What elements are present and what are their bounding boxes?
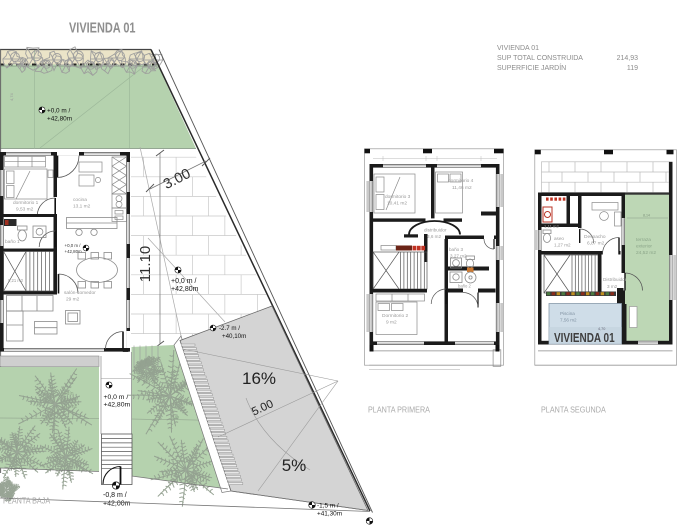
svg-text:9 m2: 9 m2 <box>386 320 397 326</box>
svg-text:terraza: terraza <box>636 237 651 243</box>
svg-text:dormitorio 3: dormitorio 3 <box>385 194 411 200</box>
svg-text:-0,8 m /: -0,8 m / <box>103 492 127 499</box>
svg-text:SUP TOTAL CONSTRUIDA: SUP TOTAL CONSTRUIDA <box>497 55 583 62</box>
svg-text:6,87 m2: 6,87 m2 <box>587 241 605 247</box>
svg-text:119: 119 <box>627 65 638 72</box>
svg-text:distribuidor: distribuidor <box>424 228 447 233</box>
svg-text:aseo: aseo <box>554 236 564 241</box>
svg-text:16%: 16% <box>242 369 276 388</box>
svg-text:+0,0 m /: +0,0 m / <box>65 243 82 248</box>
svg-text:0,21 m2: 0,21 m2 <box>8 278 24 283</box>
svg-text:214,93: 214,93 <box>617 55 639 62</box>
svg-text:+0,0 m /: +0,0 m / <box>47 108 70 115</box>
svg-text:dormitorio 4: dormitorio 4 <box>448 178 474 184</box>
svg-text:VIVIENDA 01: VIVIENDA 01 <box>69 19 135 36</box>
svg-text:4,74: 4,74 <box>9 92 14 101</box>
svg-text:exterior: exterior <box>636 244 652 250</box>
svg-text:PLANTA SEGUNDA: PLANTA SEGUNDA <box>541 405 607 415</box>
svg-text:-2.7 m /: -2.7 m / <box>219 325 240 332</box>
svg-text:baño 3: baño 3 <box>449 247 463 252</box>
svg-text:salón-comedor: salón-comedor <box>64 290 96 296</box>
svg-text:9,53 m2: 9,53 m2 <box>16 207 34 213</box>
svg-text:PLANTA BAJA: PLANTA BAJA <box>3 496 51 506</box>
svg-text:PLANTA PRIMERA: PLANTA PRIMERA <box>368 405 431 415</box>
svg-text:SUPERFICIE JARDÍN: SUPERFICIE JARDÍN <box>497 63 566 72</box>
svg-text:11.10: 11.10 <box>137 246 154 282</box>
svg-text:24,52 m2: 24,52 m2 <box>636 250 656 256</box>
svg-text:baño 1: baño 1 <box>5 239 20 245</box>
svg-text:+42,80m: +42,80m <box>171 286 199 293</box>
svg-text:4,70: 4,70 <box>598 327 605 331</box>
svg-text:Dormitorio 2: Dormitorio 2 <box>382 313 408 319</box>
svg-text:cocina: cocina <box>73 197 87 203</box>
svg-text:5%: 5% <box>282 456 307 475</box>
svg-text:Distribuidor: Distribuidor <box>603 277 627 282</box>
svg-text:+42,80m: +42,80m <box>104 402 131 409</box>
svg-text:8,14: 8,14 <box>643 214 650 218</box>
svg-text:Despacho: Despacho <box>584 234 606 240</box>
svg-text:10,41 m2: 10,41 m2 <box>387 201 407 207</box>
svg-text:13,1 m2: 13,1 m2 <box>73 204 91 210</box>
svg-text:dormitorio 1: dormitorio 1 <box>13 200 39 206</box>
svg-text:+40,10m: +40,10m <box>222 333 246 340</box>
svg-text:11,46 m2: 11,46 m2 <box>452 185 472 191</box>
svg-text:+0,0 m /: +0,0 m / <box>171 278 197 285</box>
svg-text:3 m2: 3 m2 <box>607 284 618 289</box>
svg-text:7,56 m2: 7,56 m2 <box>560 318 577 323</box>
svg-text:+42,80m: +42,80m <box>65 249 83 254</box>
svg-text:+0,0 m /: +0,0 m / <box>104 394 129 401</box>
svg-text:1,27 m2: 1,27 m2 <box>554 243 571 248</box>
svg-text:Piscina: Piscina <box>560 311 575 316</box>
svg-text:+42,80m: +42,80m <box>47 116 72 123</box>
svg-text:1,11 m2: 1,11 m2 <box>544 224 559 229</box>
svg-text:VIVIENDA 01: VIVIENDA 01 <box>497 45 539 52</box>
svg-text:-1,5 m /: -1,5 m / <box>317 503 339 510</box>
svg-text:baño 2: baño 2 <box>458 284 471 289</box>
svg-text:VIVIENDA 01: VIVIENDA 01 <box>554 332 615 345</box>
svg-text:3,6 m2: 3,6 m2 <box>427 234 441 239</box>
svg-text:29 m2: 29 m2 <box>66 297 80 303</box>
svg-text:+41,30m: +41,30m <box>317 511 342 518</box>
